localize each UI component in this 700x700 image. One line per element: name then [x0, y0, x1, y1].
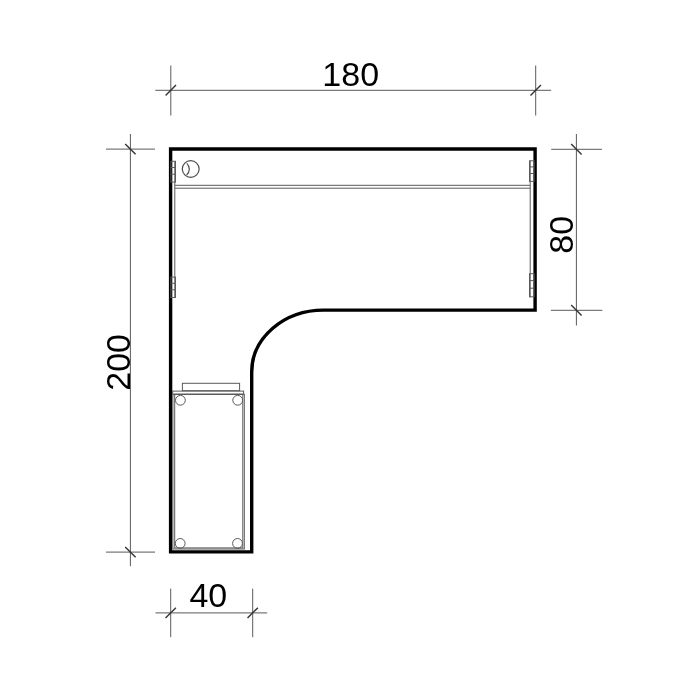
svg-text:80: 80	[542, 216, 580, 254]
svg-text:40: 40	[189, 576, 227, 614]
svg-text:180: 180	[322, 55, 379, 93]
svg-text:200: 200	[99, 334, 137, 391]
